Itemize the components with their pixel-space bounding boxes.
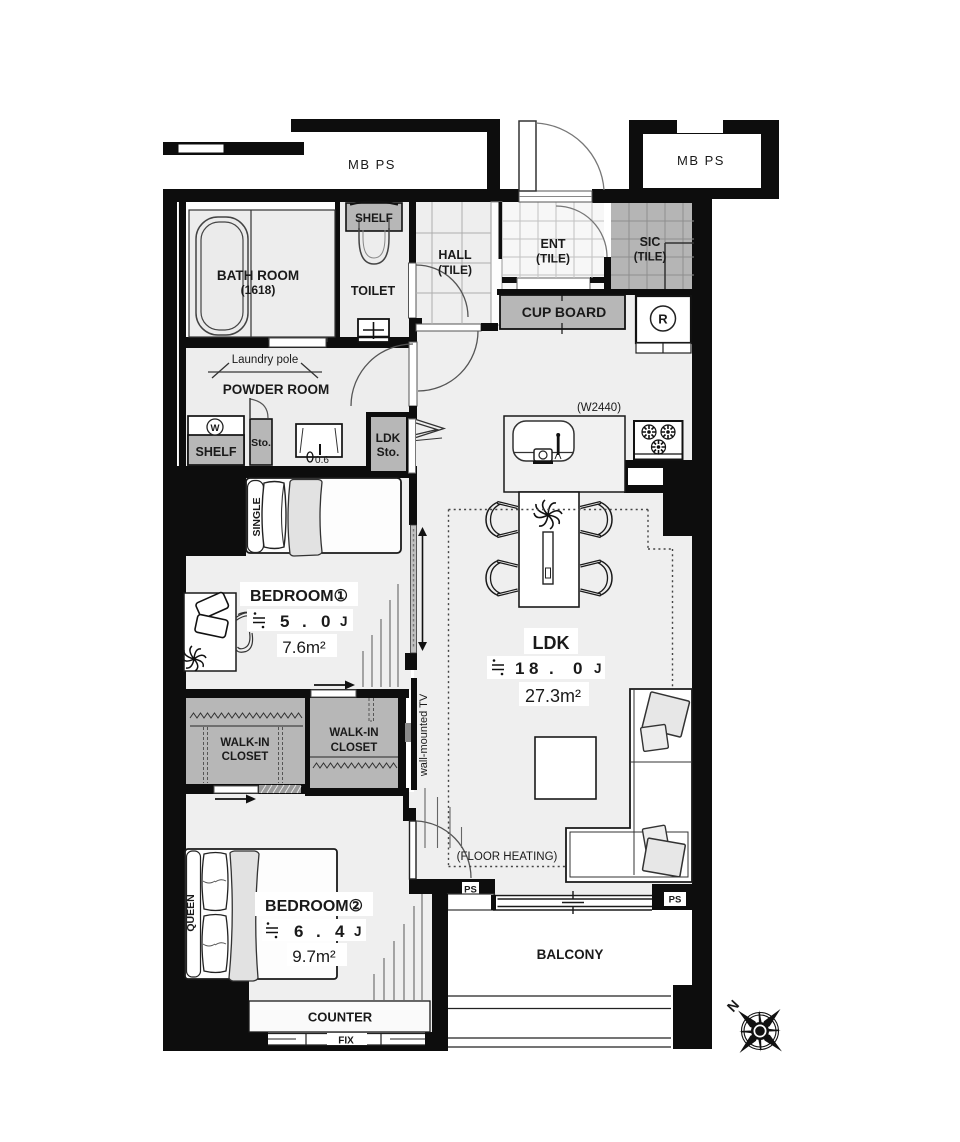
svg-text:1: 1 <box>515 659 524 678</box>
svg-text:0: 0 <box>573 659 582 678</box>
svg-text:SIC: SIC <box>640 235 661 249</box>
svg-text:HALL: HALL <box>438 248 472 262</box>
svg-text:(1618): (1618) <box>241 283 276 297</box>
svg-text:BALCONY: BALCONY <box>537 947 604 962</box>
svg-text:Laundry pole: Laundry pole <box>232 354 299 366</box>
svg-text:8: 8 <box>529 659 538 678</box>
svg-text:FIX: FIX <box>338 1036 354 1047</box>
svg-text:6: 6 <box>294 922 303 941</box>
svg-text:(W2440): (W2440) <box>577 402 621 414</box>
svg-text:BATH ROOM: BATH ROOM <box>217 268 299 283</box>
svg-text:wall-mounted TV: wall-mounted TV <box>418 693 430 777</box>
svg-text:J: J <box>340 614 348 629</box>
svg-text:SINGLE: SINGLE <box>251 497 263 536</box>
svg-text:(TILE): (TILE) <box>536 252 570 266</box>
svg-text:TOILET: TOILET <box>351 284 396 298</box>
svg-text:5: 5 <box>280 612 289 631</box>
svg-text:Sto.: Sto. <box>251 437 271 449</box>
svg-text:0.6: 0.6 <box>315 455 329 466</box>
svg-text:BEDROOM①: BEDROOM① <box>250 588 348 605</box>
svg-text:0: 0 <box>321 612 330 631</box>
svg-text:W: W <box>211 423 220 434</box>
svg-text:QUEEN: QUEEN <box>185 894 197 931</box>
svg-text:7.6m²: 7.6m² <box>282 638 326 657</box>
svg-text:(FLOOR HEATING): (FLOOR HEATING) <box>457 851 558 863</box>
svg-text:COUNTER: COUNTER <box>308 1010 373 1025</box>
svg-text:J: J <box>354 924 362 939</box>
svg-text:CLOSET: CLOSET <box>331 742 378 754</box>
svg-text:.: . <box>316 922 321 941</box>
svg-text:CUP BOARD: CUP BOARD <box>522 304 607 320</box>
svg-text:SHELF: SHELF <box>196 445 237 459</box>
svg-text:R: R <box>658 312 668 327</box>
svg-text:J: J <box>594 661 602 676</box>
svg-text:MB PS: MB PS <box>348 157 396 172</box>
svg-text:Sto.: Sto. <box>377 445 400 459</box>
svg-text:SHELF: SHELF <box>355 213 393 225</box>
svg-text:27.3m²: 27.3m² <box>525 686 581 706</box>
svg-text:9.7m²: 9.7m² <box>292 947 336 966</box>
svg-text:PS: PS <box>669 895 682 906</box>
svg-text:BEDROOM②: BEDROOM② <box>265 898 363 915</box>
svg-text:4: 4 <box>335 922 345 941</box>
svg-text:MB PS: MB PS <box>677 153 725 168</box>
svg-text:ENT: ENT <box>541 237 566 251</box>
svg-text:.: . <box>302 612 307 631</box>
svg-text:PS: PS <box>464 885 477 896</box>
svg-text:LDK: LDK <box>376 431 401 445</box>
svg-text:WALK-IN: WALK-IN <box>220 737 269 749</box>
svg-text:WALK-IN: WALK-IN <box>329 727 378 739</box>
svg-text:CLOSET: CLOSET <box>222 751 269 763</box>
svg-text:(TILE): (TILE) <box>438 263 472 277</box>
svg-text:LDK: LDK <box>533 633 570 653</box>
svg-text:POWDER ROOM: POWDER ROOM <box>223 382 330 397</box>
svg-text:.: . <box>549 659 554 678</box>
svg-text:(TILE): (TILE) <box>634 252 667 264</box>
